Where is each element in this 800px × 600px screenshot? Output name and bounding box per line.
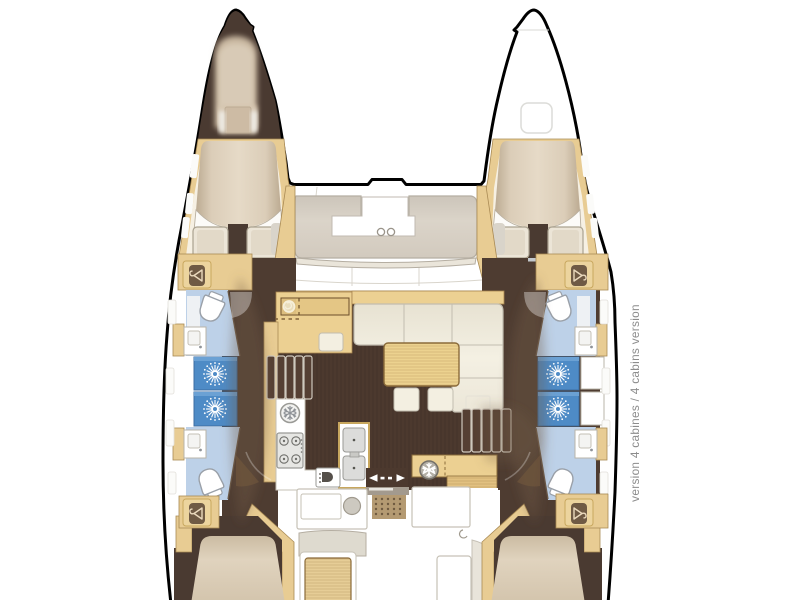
svg-text:version 4 cabines / 4 cabins v: version 4 cabines / 4 cabins version: [628, 304, 642, 502]
